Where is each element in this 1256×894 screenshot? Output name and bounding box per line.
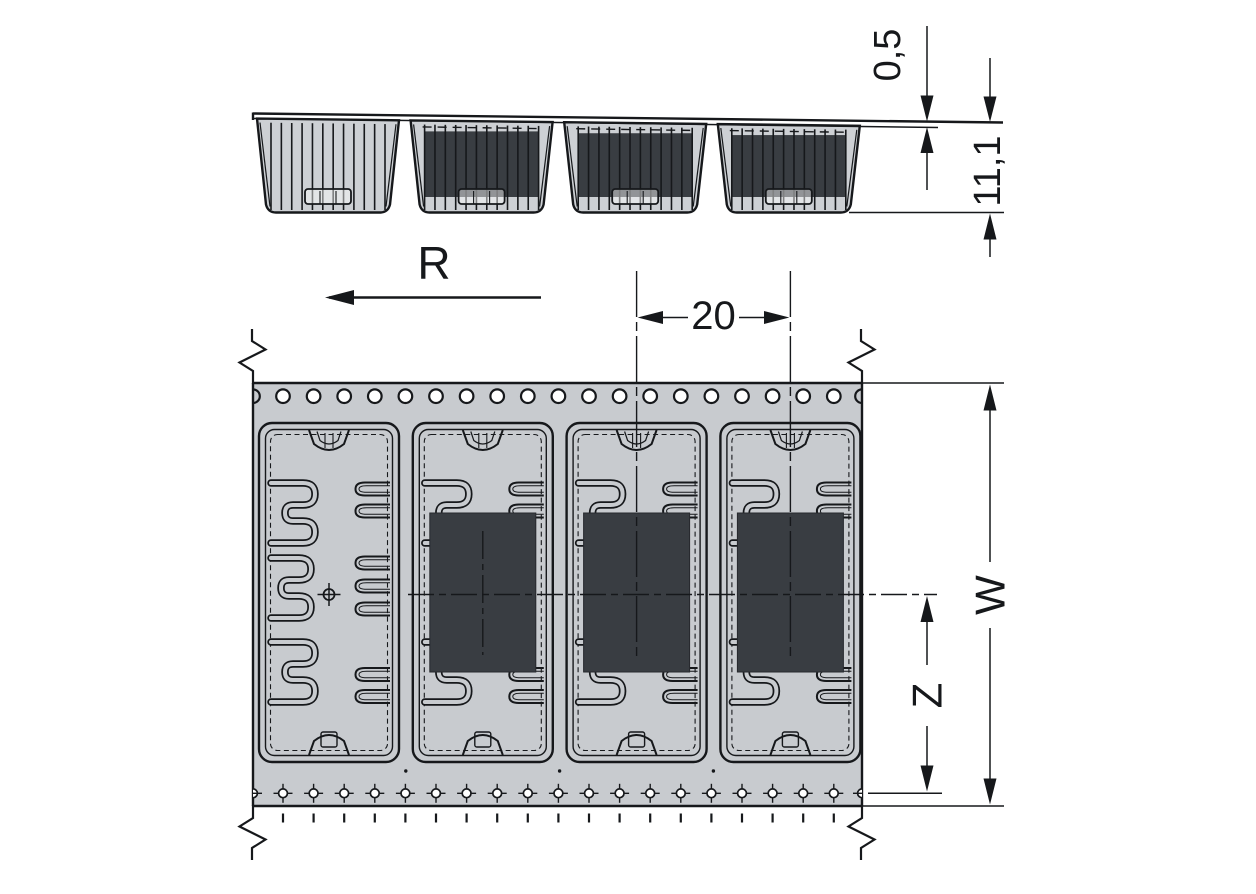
dim-z-label: Z <box>904 683 951 709</box>
dim-pitch-label: 20 <box>691 294 736 338</box>
sprocket-hole <box>735 389 749 403</box>
pocket-foot <box>612 189 658 204</box>
dim-pocket-depth: 11,1 <box>849 58 1009 257</box>
sprocket-hole <box>552 389 566 403</box>
gap-dot <box>712 769 715 772</box>
dim-hole-centerline: Z <box>868 596 951 793</box>
pocket-foot <box>305 189 351 204</box>
pocket-foot <box>766 189 812 204</box>
side-pocket <box>411 120 553 212</box>
sprocket-hole <box>399 389 413 403</box>
pocket-foot <box>459 189 505 204</box>
sprocket-hole <box>766 389 780 403</box>
direction-arrow-head <box>325 290 354 305</box>
sprocket-hole <box>674 389 688 403</box>
side-pocket <box>564 122 706 212</box>
side-view: 0,5 11,1 <box>253 26 1009 257</box>
sprocket-hole <box>429 389 443 403</box>
sprocket-hole <box>613 389 627 403</box>
component-side <box>425 131 539 197</box>
dim-pocket-depth-label: 11,1 <box>967 135 1009 206</box>
dim-tape-width-label: W <box>967 575 1014 615</box>
sprocket-hole <box>796 389 810 403</box>
dim-cover-thickness: 0,5 <box>867 26 934 190</box>
sprocket-hole <box>705 389 719 403</box>
sprocket-hole <box>827 389 841 403</box>
break-line <box>240 329 266 384</box>
drawing-canvas: 0,5 11,1 R <box>0 0 1256 894</box>
dim-pitch: 20 <box>638 294 790 338</box>
sprocket-hole <box>521 389 535 403</box>
sprocket-hole <box>276 389 290 403</box>
side-pocket <box>257 119 399 213</box>
tick-mark-row <box>283 814 834 823</box>
gap-dot <box>404 769 407 772</box>
technical-drawing: 0,5 11,1 R <box>0 0 1256 894</box>
dim-cover-thickness-label: 0,5 <box>867 29 909 82</box>
component-side <box>578 133 692 197</box>
sprocket-hole <box>337 389 351 403</box>
direction-label: R <box>417 237 450 289</box>
sprocket-hole <box>460 389 474 403</box>
component-side <box>732 135 846 197</box>
break-line <box>240 805 266 860</box>
gap-dot <box>558 769 561 772</box>
direction-indicator: R <box>325 237 541 305</box>
side-view-pockets <box>257 119 860 213</box>
break-line <box>849 805 875 860</box>
sprocket-hole <box>307 389 321 403</box>
sprocket-hole <box>643 389 657 403</box>
side-pocket <box>718 124 860 212</box>
sprocket-hole <box>490 389 504 403</box>
sprocket-hole <box>368 389 382 403</box>
top-view <box>240 271 938 860</box>
break-line <box>849 329 875 384</box>
sprocket-hole <box>582 389 596 403</box>
